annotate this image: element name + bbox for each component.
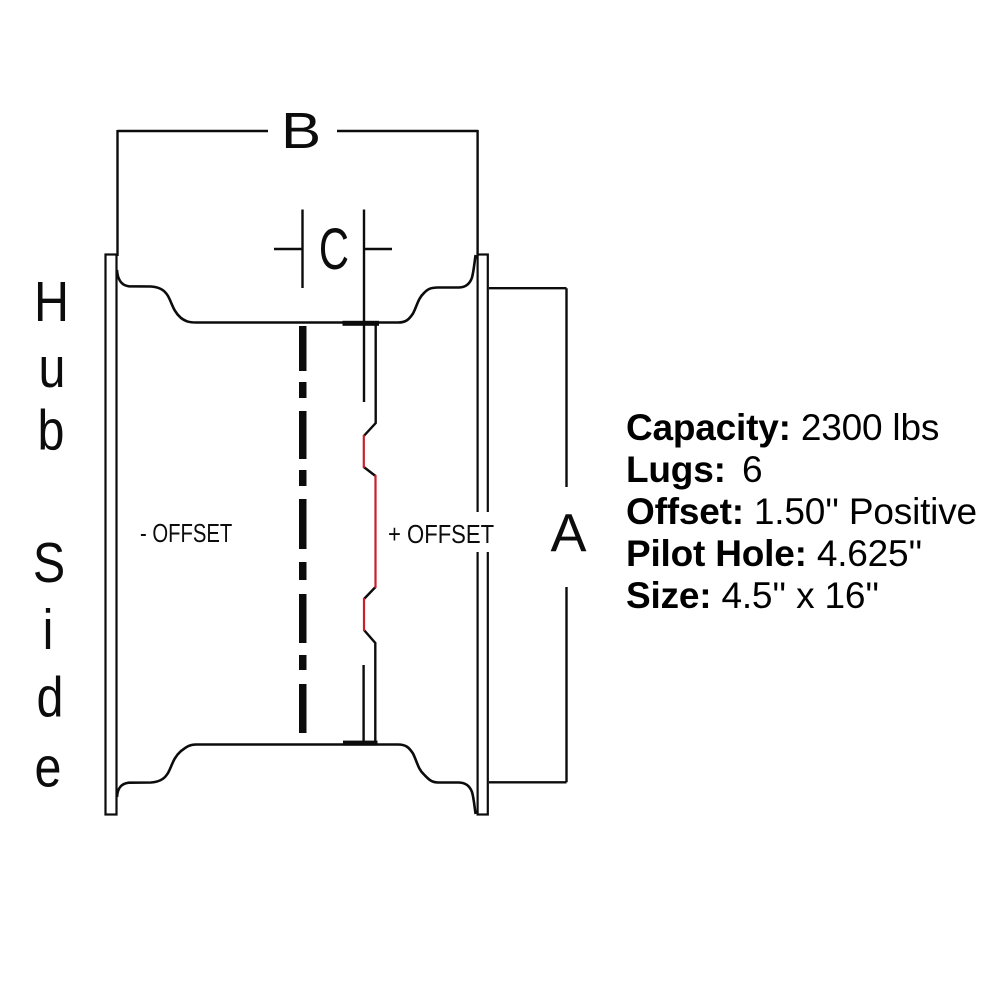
svg-text:u: u <box>39 336 66 400</box>
svg-text:d: d <box>37 666 64 730</box>
svg-text:Capacity: 2300 lbs: Capacity: 2300 lbs <box>626 407 939 448</box>
svg-text:Pilot Hole: 4.625'': Pilot Hole: 4.625'' <box>626 533 922 574</box>
svg-text:B: B <box>281 102 321 159</box>
svg-text:- OFFSET: - OFFSET <box>140 519 232 548</box>
svg-text:e: e <box>35 736 62 800</box>
svg-text:+ OFFSET: + OFFSET <box>388 520 494 549</box>
svg-text:H: H <box>34 270 69 334</box>
svg-text:b: b <box>38 399 65 463</box>
svg-text:6: 6 <box>742 449 762 490</box>
svg-text:A: A <box>550 504 586 564</box>
svg-text:S: S <box>33 531 65 595</box>
svg-text:C: C <box>319 216 349 281</box>
svg-text:Lugs:: Lugs: <box>626 449 726 490</box>
svg-text:Size: 4.5'' x 16'': Size: 4.5'' x 16'' <box>626 575 879 616</box>
svg-text:i: i <box>43 598 54 662</box>
svg-text:Offset: 1.50'' Positive: Offset: 1.50'' Positive <box>626 491 977 532</box>
